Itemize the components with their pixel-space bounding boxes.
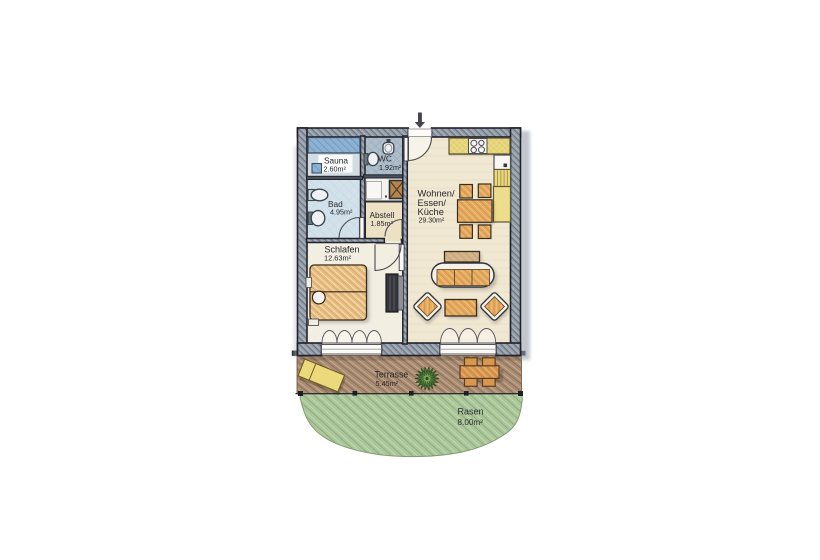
- svg-text:Terrasse: Terrasse: [375, 370, 409, 380]
- svg-text:12.63m²: 12.63m²: [324, 254, 352, 263]
- svg-text:Küche: Küche: [418, 207, 444, 217]
- svg-text:Rasen: Rasen: [458, 407, 484, 417]
- svg-text:8.00m²: 8.00m²: [458, 418, 484, 427]
- svg-text:2.60m²: 2.60m²: [324, 165, 347, 174]
- svg-text:Wohnen/: Wohnen/: [418, 189, 455, 199]
- svg-text:1.92m²: 1.92m²: [379, 163, 402, 172]
- svg-text:1.85m²: 1.85m²: [371, 219, 394, 228]
- svg-text:29.30m²: 29.30m²: [419, 218, 445, 225]
- svg-text:4.95m²: 4.95m²: [330, 208, 353, 217]
- svg-text:WC: WC: [378, 154, 392, 164]
- svg-text:5.45m²: 5.45m²: [376, 379, 399, 388]
